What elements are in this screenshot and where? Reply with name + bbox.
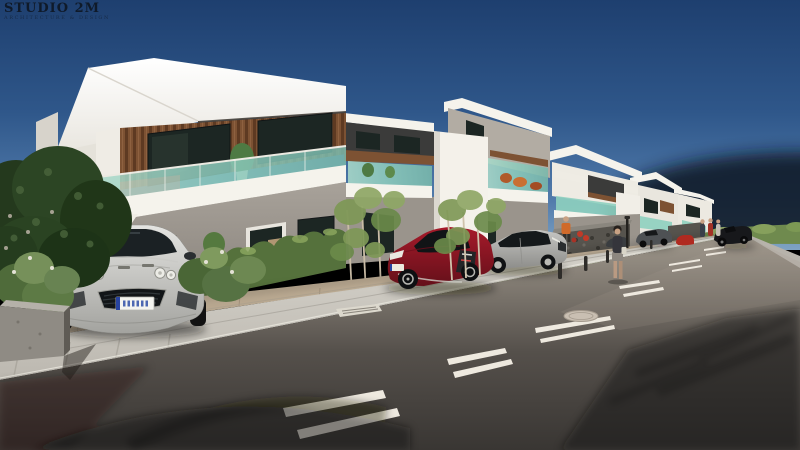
bollard xyxy=(606,250,609,263)
bollard xyxy=(584,256,588,271)
architectural-rendering xyxy=(0,0,800,450)
rendering-stage: STUDIO 2M ARCHITECTURE & DESIGN xyxy=(0,0,800,450)
license-plate xyxy=(116,297,154,310)
bollard xyxy=(558,262,562,279)
far-group xyxy=(700,218,721,237)
lamp-post xyxy=(626,218,629,248)
bollard xyxy=(650,240,653,249)
